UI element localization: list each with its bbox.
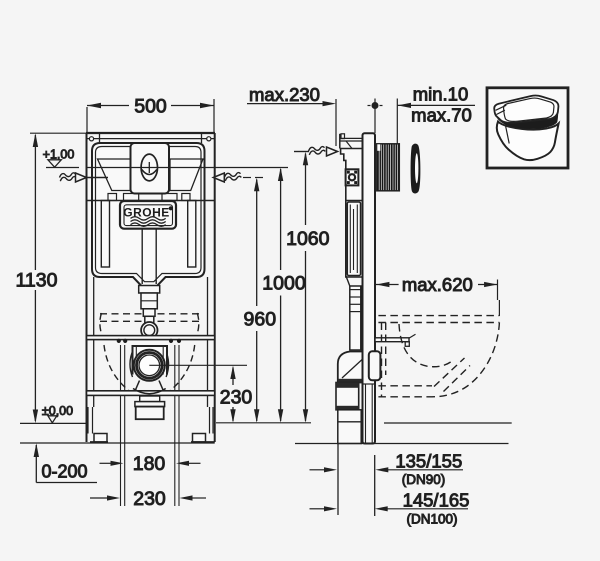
svg-text:135/155: 135/155 [395, 451, 462, 472]
svg-text:145/165: 145/165 [403, 489, 470, 510]
svg-text:max.620: max.620 [402, 274, 473, 295]
svg-text:1000: 1000 [262, 272, 306, 294]
svg-text:960: 960 [244, 309, 277, 331]
svg-text:230: 230 [220, 387, 253, 409]
svg-text:180: 180 [133, 453, 166, 475]
svg-text:230: 230 [133, 488, 166, 510]
svg-text:500: 500 [134, 96, 167, 118]
svg-text:max.70: max.70 [411, 104, 472, 125]
svg-text:min.10: min.10 [413, 83, 469, 104]
svg-text:(DN100): (DN100) [406, 512, 457, 527]
svg-text:max.230: max.230 [249, 84, 320, 105]
svg-text:0-200: 0-200 [41, 461, 87, 481]
svg-text:1130: 1130 [16, 270, 58, 292]
svg-text:(DN90): (DN90) [402, 472, 446, 487]
svg-text:1060: 1060 [286, 228, 330, 250]
svg-text:GROHE: GROHE [123, 206, 170, 220]
